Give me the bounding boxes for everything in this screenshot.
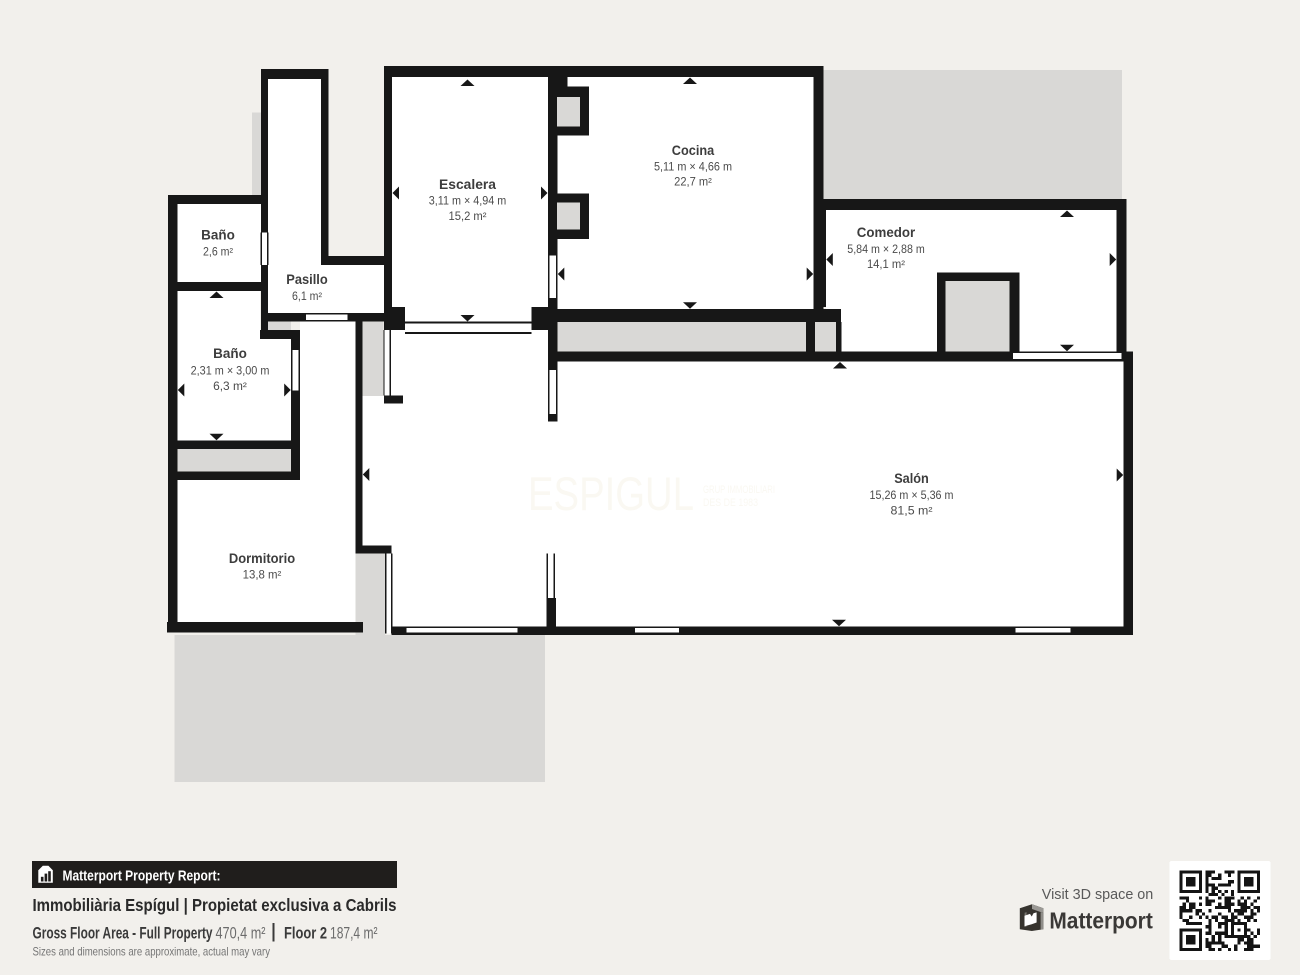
- svg-text:3,11 m × 4,94 m: 3,11 m × 4,94 m: [429, 196, 507, 208]
- svg-text:Immobiliària Espígul | Propiet: Immobiliària Espígul | Propietat exclusi…: [33, 895, 397, 915]
- svg-text:ESPIGUL: ESPIGUL: [528, 467, 694, 520]
- svg-text:2,31 m × 3,00 m: 2,31 m × 3,00 m: [191, 366, 270, 378]
- svg-text:14,1 m²: 14,1 m²: [867, 259, 905, 271]
- svg-text:Matterport Property Report:: Matterport Property Report:: [63, 868, 221, 885]
- svg-text:2,6 m²: 2,6 m²: [203, 247, 233, 259]
- svg-text:Sizes and dimensions are appro: Sizes and dimensions are approximate, ac…: [33, 945, 271, 959]
- svg-text:GRUP IMMOBILIARI: GRUP IMMOBILIARI: [703, 484, 775, 496]
- svg-text:Cocina: Cocina: [672, 142, 715, 158]
- svg-text:5,11 m × 4,66 m: 5,11 m × 4,66 m: [654, 162, 732, 174]
- svg-text:Matterport: Matterport: [1049, 908, 1153, 934]
- svg-text:81,5 m²: 81,5 m²: [891, 506, 933, 518]
- svg-text:Comedor: Comedor: [857, 224, 916, 240]
- svg-text:Floor 2: Floor 2: [284, 924, 327, 943]
- svg-text:Dormitorio: Dormitorio: [229, 550, 295, 566]
- svg-text:Gross Floor Area - Full Proper: Gross Floor Area - Full Property: [33, 924, 213, 943]
- svg-text:22,7 m²: 22,7 m²: [674, 177, 712, 189]
- svg-text:187,4 m²: 187,4 m²: [330, 924, 378, 943]
- svg-text:Baño: Baño: [201, 227, 235, 243]
- svg-text:DES DE 1983: DES DE 1983: [703, 497, 758, 509]
- svg-text:6,3 m²: 6,3 m²: [213, 381, 247, 393]
- svg-text:Pasillo: Pasillo: [286, 271, 328, 287]
- svg-text:Baño: Baño: [213, 345, 247, 361]
- svg-text:6,1 m²: 6,1 m²: [292, 291, 322, 303]
- svg-text:Escalera: Escalera: [439, 176, 496, 192]
- svg-text:13,8 m²: 13,8 m²: [243, 570, 282, 582]
- svg-text:Visit 3D space on: Visit 3D space on: [1042, 886, 1154, 903]
- svg-text:470,4 m²: 470,4 m²: [216, 924, 266, 943]
- svg-text:15,2 m²: 15,2 m²: [449, 211, 487, 223]
- svg-text:Salón: Salón: [894, 470, 929, 486]
- svg-text:15,26 m × 5,36 m: 15,26 m × 5,36 m: [870, 490, 954, 502]
- svg-text:5,84 m × 2,88 m: 5,84 m × 2,88 m: [847, 244, 925, 256]
